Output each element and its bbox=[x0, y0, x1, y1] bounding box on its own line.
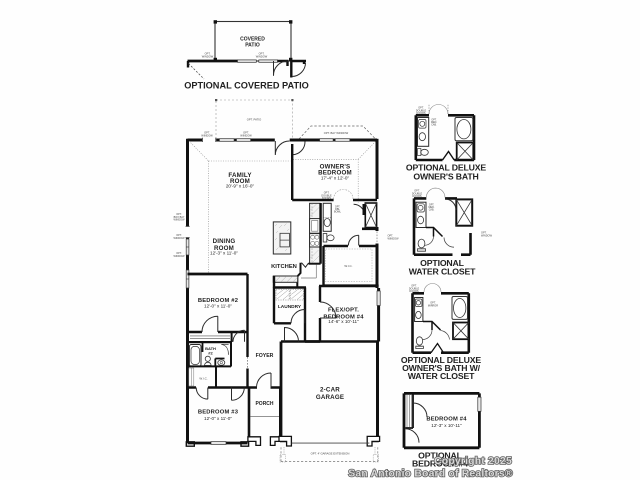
svg-text:BEDROOM #3: BEDROOM #3 bbox=[198, 410, 239, 416]
svg-text:WINDOW: WINDOW bbox=[256, 54, 268, 58]
svg-text:WINDOW: WINDOW bbox=[202, 54, 214, 58]
svg-text:OPT. BAY WINDOW: OPT. BAY WINDOW bbox=[324, 131, 349, 135]
svg-text:BEDROOM #4: BEDROOM #4 bbox=[426, 417, 467, 423]
svg-text:WATER CLOSET: WATER CLOSET bbox=[409, 267, 476, 277]
svg-text:WINDOW: WINDOW bbox=[174, 255, 186, 258]
svg-text:W.I.C.: W.I.C. bbox=[199, 377, 207, 381]
svg-text:OPT. 4' GARAGE EXTENSION: OPT. 4' GARAGE EXTENSION bbox=[311, 452, 350, 456]
svg-text:WINDOW: WINDOW bbox=[174, 219, 186, 222]
svg-text:WINDOW: WINDOW bbox=[481, 234, 493, 237]
svg-text:OPT. PATIO: OPT. PATIO bbox=[247, 118, 261, 122]
svg-text:DINING: DINING bbox=[213, 238, 236, 245]
svg-text:FOYER: FOYER bbox=[256, 353, 274, 359]
svg-text:#2: #2 bbox=[208, 351, 213, 356]
svg-text:BOWL: BOWL bbox=[334, 211, 342, 214]
svg-text:2-CAR: 2-CAR bbox=[320, 387, 340, 394]
svg-text:DOORS: DOORS bbox=[416, 112, 426, 115]
svg-text:WINDOW: WINDOW bbox=[174, 237, 186, 240]
svg-text:GARAGE: GARAGE bbox=[316, 394, 344, 401]
svg-text:KITCHEN: KITCHEN bbox=[271, 264, 297, 270]
svg-text:14'-6" x 10'-11": 14'-6" x 10'-11" bbox=[328, 319, 359, 324]
svg-text:12'-3" x 10'-11": 12'-3" x 10'-11" bbox=[431, 423, 462, 428]
svg-text:20'-9" x 16'-0": 20'-9" x 16'-0" bbox=[226, 184, 255, 189]
svg-text:12'-0" x 11'-0": 12'-0" x 11'-0" bbox=[204, 416, 232, 421]
svg-text:PORCH: PORCH bbox=[255, 401, 273, 407]
svg-text:CAB.: CAB. bbox=[431, 124, 437, 127]
svg-text:WINDOW: WINDOW bbox=[388, 237, 400, 240]
svg-text:WINDOW: WINDOW bbox=[240, 133, 252, 137]
svg-text:DOORS: DOORS bbox=[412, 195, 422, 198]
svg-text:12'-3" x 11'-0": 12'-3" x 11'-0" bbox=[210, 251, 238, 256]
svg-text:DOORS: DOORS bbox=[409, 290, 419, 293]
svg-text:DOORS: DOORS bbox=[322, 197, 332, 200]
svg-text:PATIO: PATIO bbox=[245, 43, 260, 49]
svg-text:WATER CLOSET: WATER CLOSET bbox=[408, 371, 475, 381]
svg-text:12'-0" x 11'-0": 12'-0" x 11'-0" bbox=[204, 303, 232, 308]
svg-text:Copyright 2025: Copyright 2025 bbox=[434, 456, 512, 467]
svg-text:MIRROR: MIRROR bbox=[428, 304, 438, 307]
svg-text:17'-4" x 12'-0": 17'-4" x 12'-0" bbox=[321, 175, 350, 180]
svg-text:W.I.C.: W.I.C. bbox=[344, 264, 352, 268]
svg-text:LAUNDRY: LAUNDRY bbox=[278, 304, 302, 310]
svg-text:OWNER'S BATH: OWNER'S BATH bbox=[413, 172, 478, 182]
svg-text:San Antonio Board of Realtors®: San Antonio Board of Realtors® bbox=[348, 469, 513, 480]
svg-text:WINDOW: WINDOW bbox=[201, 133, 213, 137]
svg-text:OPTIONAL COVERED PATIO: OPTIONAL COVERED PATIO bbox=[184, 81, 309, 91]
svg-text:CAB.: CAB. bbox=[429, 209, 435, 212]
